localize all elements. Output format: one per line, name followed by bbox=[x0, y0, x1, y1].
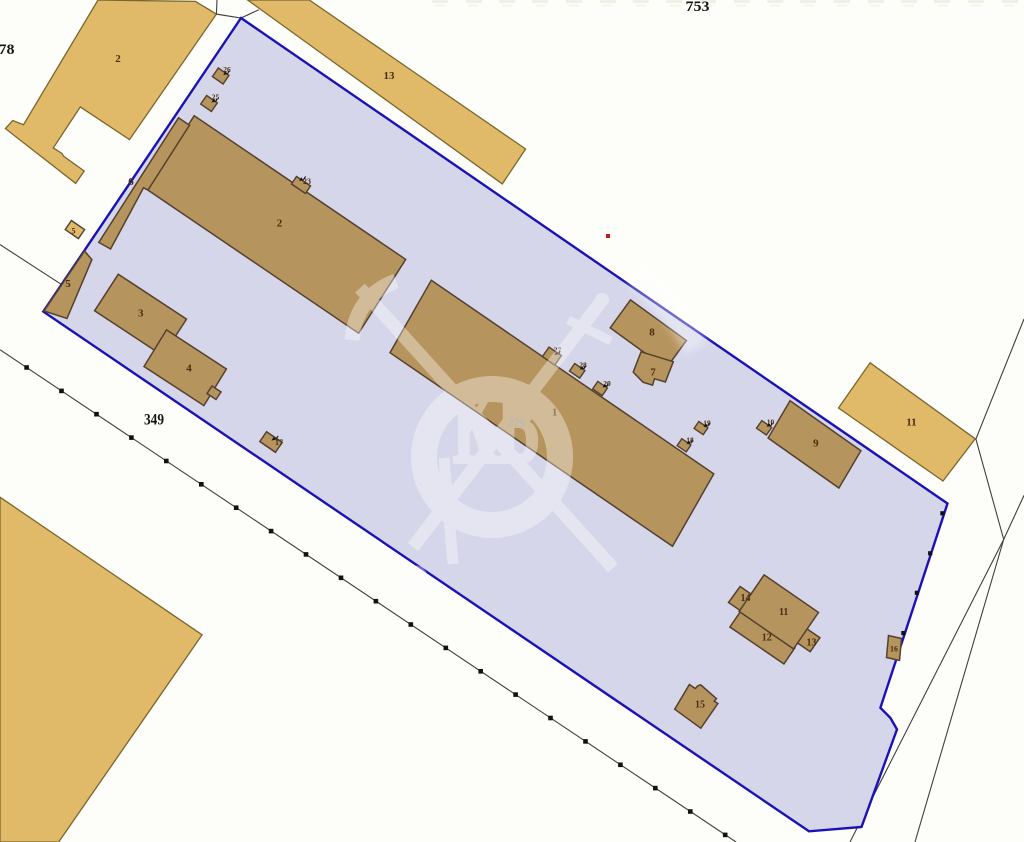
svg-text:13: 13 bbox=[807, 638, 817, 649]
svg-text:12: 12 bbox=[762, 633, 772, 644]
svg-text:11: 11 bbox=[906, 417, 916, 429]
svg-text:278: 278 bbox=[0, 42, 15, 58]
svg-text:5: 5 bbox=[72, 227, 76, 236]
svg-text:2: 2 bbox=[115, 53, 121, 65]
svg-text:25: 25 bbox=[212, 93, 220, 102]
svg-text:349: 349 bbox=[144, 412, 164, 429]
svg-text:13: 13 bbox=[384, 70, 396, 82]
svg-text:11: 11 bbox=[779, 607, 788, 618]
svg-text:3: 3 bbox=[138, 308, 144, 320]
svg-text:2: 2 bbox=[277, 218, 283, 230]
svg-text:КВ: КВ bbox=[453, 362, 539, 487]
svg-text:26: 26 bbox=[223, 65, 231, 74]
svg-text:5: 5 bbox=[65, 278, 71, 290]
svg-text:8: 8 bbox=[649, 327, 655, 339]
svg-text:9: 9 bbox=[813, 438, 819, 450]
svg-text:7: 7 bbox=[650, 367, 656, 379]
svg-text:753: 753 bbox=[686, 0, 710, 15]
svg-text:15: 15 bbox=[695, 700, 705, 711]
svg-text:4: 4 bbox=[186, 363, 192, 375]
svg-text:16: 16 bbox=[890, 645, 898, 654]
svg-text:6: 6 bbox=[128, 176, 134, 188]
svg-text:14: 14 bbox=[741, 593, 751, 604]
